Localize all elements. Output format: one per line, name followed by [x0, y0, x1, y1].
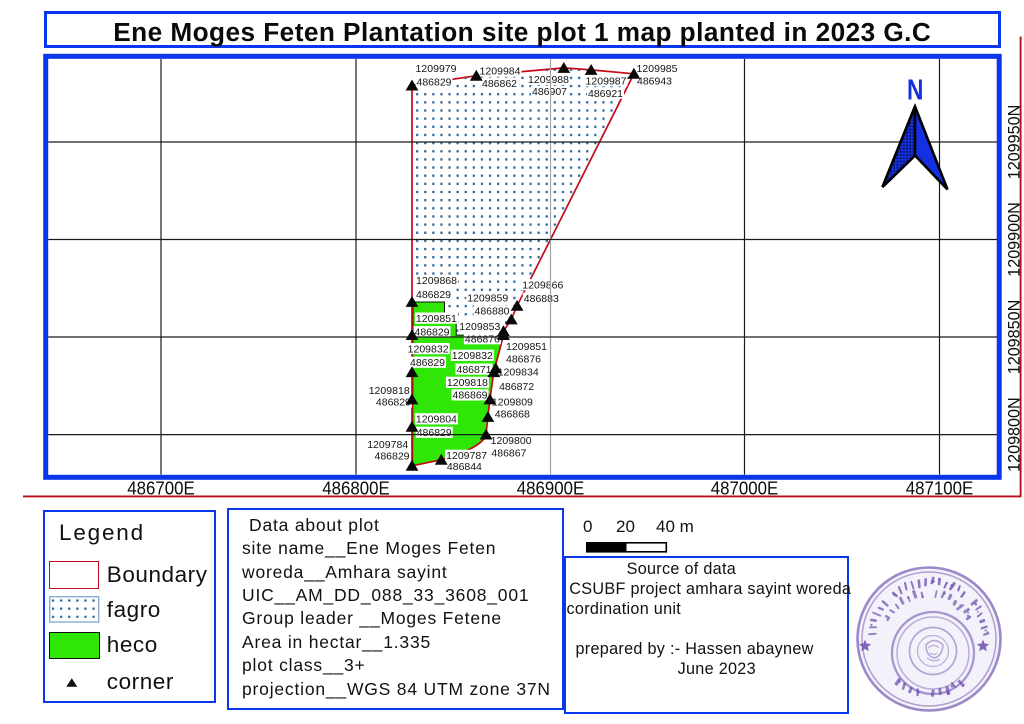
svg-text:486907: 486907 [532, 86, 567, 98]
svg-text:487000E: 487000E [711, 478, 778, 498]
svg-text:1209818: 1209818 [369, 385, 410, 397]
svg-text:486844: 486844 [447, 461, 482, 473]
svg-text:486829: 486829 [410, 357, 445, 369]
svg-text:1209987: 1209987 [586, 75, 627, 87]
svg-text:1209832: 1209832 [408, 343, 449, 355]
svg-text:1209809: 1209809 [492, 397, 533, 409]
svg-text:486921: 486921 [588, 88, 623, 100]
svg-text:486900E: 486900E [517, 478, 584, 498]
svg-text:1209804: 1209804 [416, 414, 457, 426]
svg-text:1209859: 1209859 [467, 293, 508, 305]
svg-text:1209800: 1209800 [491, 435, 532, 447]
svg-text:486876: 486876 [506, 353, 541, 365]
svg-text:1209866: 1209866 [522, 279, 563, 291]
svg-text:486829: 486829 [417, 427, 452, 439]
svg-text:486876: 486876 [465, 333, 500, 345]
svg-text:486880: 486880 [475, 306, 510, 318]
svg-text:1209787: 1209787 [446, 450, 487, 462]
svg-text:1209988: 1209988 [528, 74, 569, 86]
svg-text:486800E: 486800E [322, 478, 389, 498]
svg-text:486829: 486829 [375, 450, 410, 462]
svg-text:1209984: 1209984 [480, 65, 521, 77]
svg-text:486867: 486867 [491, 448, 526, 460]
svg-text:1209818: 1209818 [447, 377, 488, 389]
svg-text:486862: 486862 [482, 78, 517, 90]
svg-text:486829: 486829 [416, 289, 451, 301]
svg-text:1209979: 1209979 [416, 63, 457, 75]
svg-text:1209853: 1209853 [459, 321, 500, 333]
svg-text:487100E: 487100E [906, 478, 973, 498]
svg-text:1209985: 1209985 [637, 63, 678, 75]
svg-text:486869: 486869 [453, 390, 488, 402]
svg-text:486872: 486872 [499, 381, 534, 393]
svg-text:486829: 486829 [376, 397, 411, 409]
svg-text:N: N [907, 75, 923, 106]
svg-text:1209834: 1209834 [498, 366, 539, 378]
svg-text:1209832: 1209832 [452, 350, 493, 362]
svg-text:1209851: 1209851 [416, 313, 457, 325]
svg-text:486883: 486883 [524, 293, 559, 305]
svg-text:486943: 486943 [637, 75, 672, 87]
svg-text:486868: 486868 [495, 408, 530, 420]
svg-text:486829: 486829 [417, 77, 452, 89]
svg-text:1209868: 1209868 [416, 275, 457, 287]
svg-text:486700E: 486700E [127, 478, 194, 498]
svg-text:1209851: 1209851 [506, 341, 547, 353]
svg-text:486871: 486871 [457, 364, 492, 376]
svg-text:1209784: 1209784 [367, 439, 408, 451]
